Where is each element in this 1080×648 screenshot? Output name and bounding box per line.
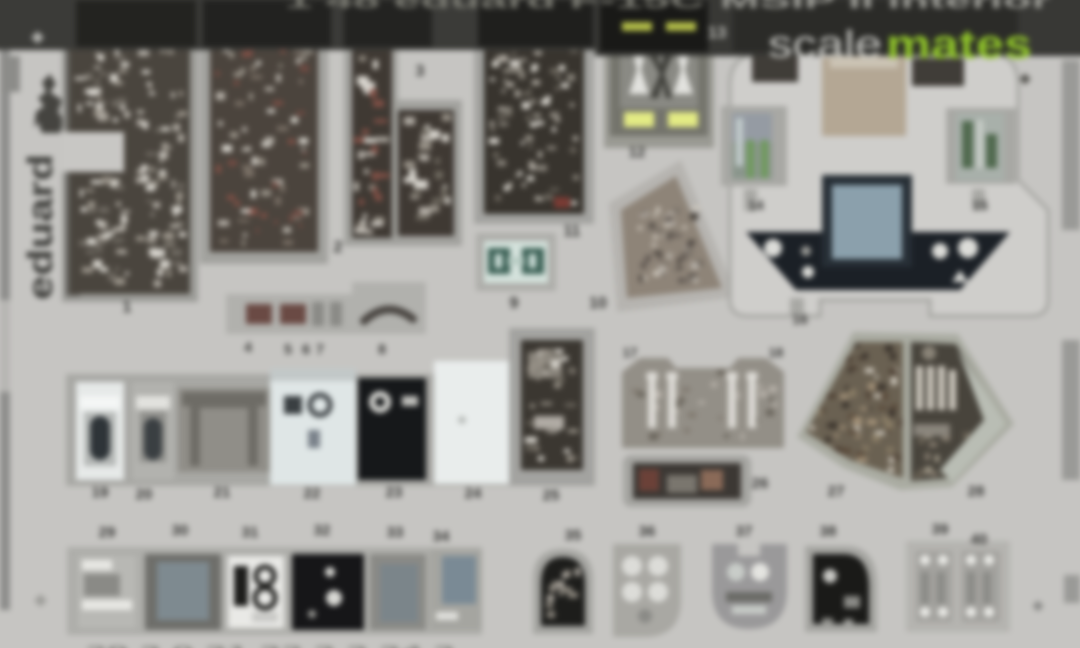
svg-text:36: 36 [639,523,656,540]
svg-text:7: 7 [316,341,324,357]
svg-text:24: 24 [465,485,482,502]
svg-text:26: 26 [752,475,769,492]
svg-text:38: 38 [820,523,837,540]
svg-text:35: 35 [565,527,582,544]
svg-text:9: 9 [510,295,519,312]
svg-text:6: 6 [302,341,310,357]
svg-text:23: 23 [386,484,403,501]
svg-text:10: 10 [589,295,607,312]
svg-text:39: 39 [932,521,949,538]
svg-text:13: 13 [708,23,727,42]
svg-text:3: 3 [416,63,425,80]
svg-text:12: 12 [629,144,646,161]
svg-text:31: 31 [242,524,259,541]
svg-text:20: 20 [136,486,153,503]
svg-text:1: 1 [123,299,132,316]
svg-text:1 48 eduard F-15C: 1 48 eduard F-15C [285,0,705,13]
svg-text:17: 17 [623,345,637,360]
svg-text:MSIP II interior: MSIP II interior [720,0,1051,13]
svg-text:37: 37 [736,523,753,540]
svg-text:29: 29 [99,524,116,541]
svg-text:19: 19 [92,484,109,501]
svg-text:29 3 0 31 32 3 3 34 3: 29 3 0 31 32 3 3 34 3 [85,644,455,648]
svg-text:40: 40 [971,531,988,548]
svg-text:scale: scale [768,24,882,66]
svg-text:27: 27 [828,483,845,500]
svg-text:2: 2 [334,239,343,256]
svg-text:22: 22 [304,485,321,502]
svg-text:34: 34 [433,528,450,545]
svg-text:15: 15 [972,197,988,213]
svg-text:30: 30 [172,522,189,539]
svg-text:8: 8 [378,341,386,357]
svg-text:mates: mates [886,21,1032,67]
svg-text:28: 28 [968,483,985,500]
svg-text:32: 32 [314,522,331,539]
svg-text:4: 4 [244,339,252,355]
svg-text:25: 25 [543,487,560,504]
svg-text:18: 18 [769,345,783,360]
svg-text:eduard: eduard [21,154,60,300]
svg-text:14: 14 [748,197,764,213]
svg-text:16: 16 [792,311,808,327]
svg-text:5: 5 [284,341,292,357]
svg-text:33: 33 [387,524,404,541]
svg-text:21: 21 [214,484,231,501]
svg-text:11: 11 [564,223,581,240]
